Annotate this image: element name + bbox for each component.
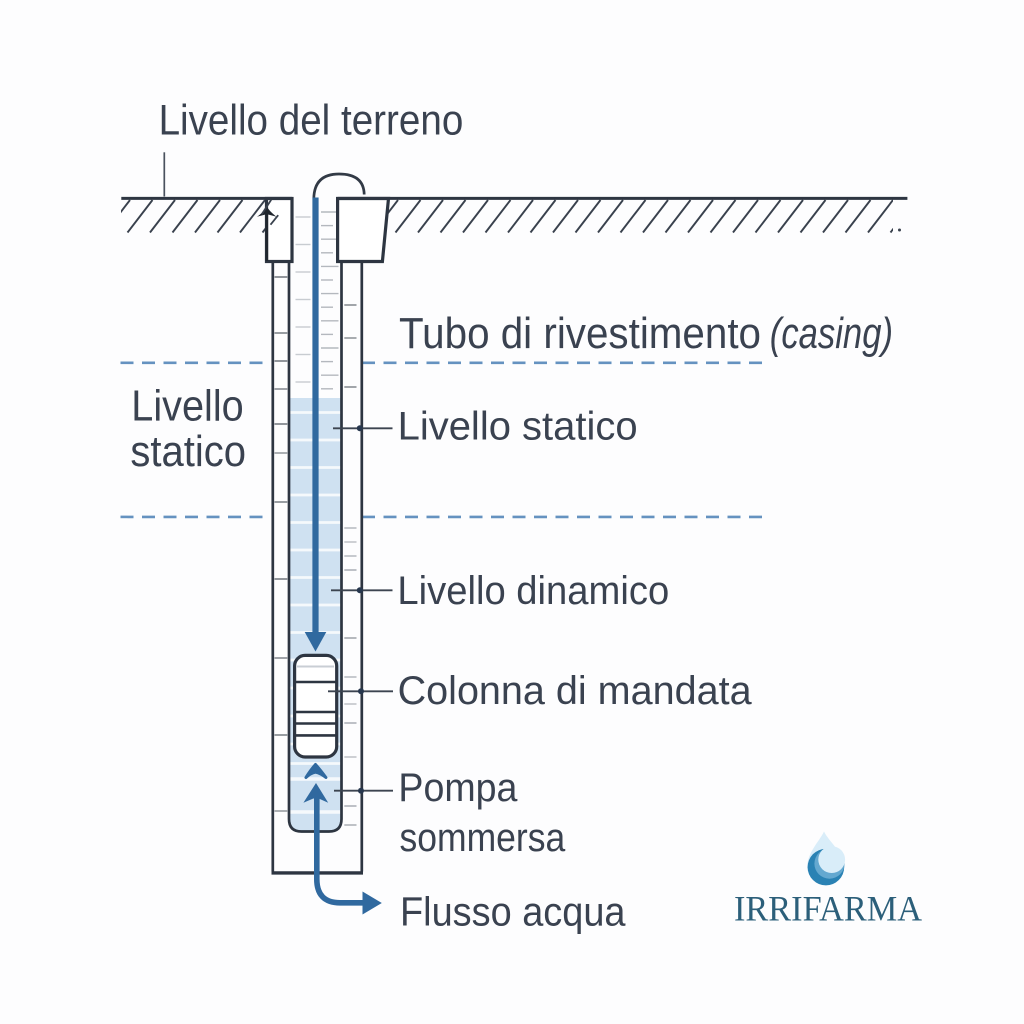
svg-text:Livello statico: Livello statico	[398, 404, 638, 448]
svg-text:Livello dinamico: Livello dinamico	[397, 569, 669, 613]
svg-text:IRRIFARMA: IRRIFARMA	[734, 889, 922, 929]
svg-text:statico: statico	[130, 427, 246, 476]
svg-text:Pompa: Pompa	[398, 766, 518, 810]
svg-text:Livello del terreno: Livello del terreno	[159, 97, 464, 145]
svg-text:Tubo di rivestimento: Tubo di rivestimento	[399, 309, 761, 358]
svg-text:Livello: Livello	[131, 381, 243, 430]
svg-text:Colonna di mandata: Colonna di mandata	[398, 669, 753, 713]
svg-text:Flusso acqua: Flusso acqua	[400, 889, 626, 935]
svg-text:sommersa: sommersa	[400, 816, 566, 860]
svg-text:(casing): (casing)	[770, 309, 893, 358]
